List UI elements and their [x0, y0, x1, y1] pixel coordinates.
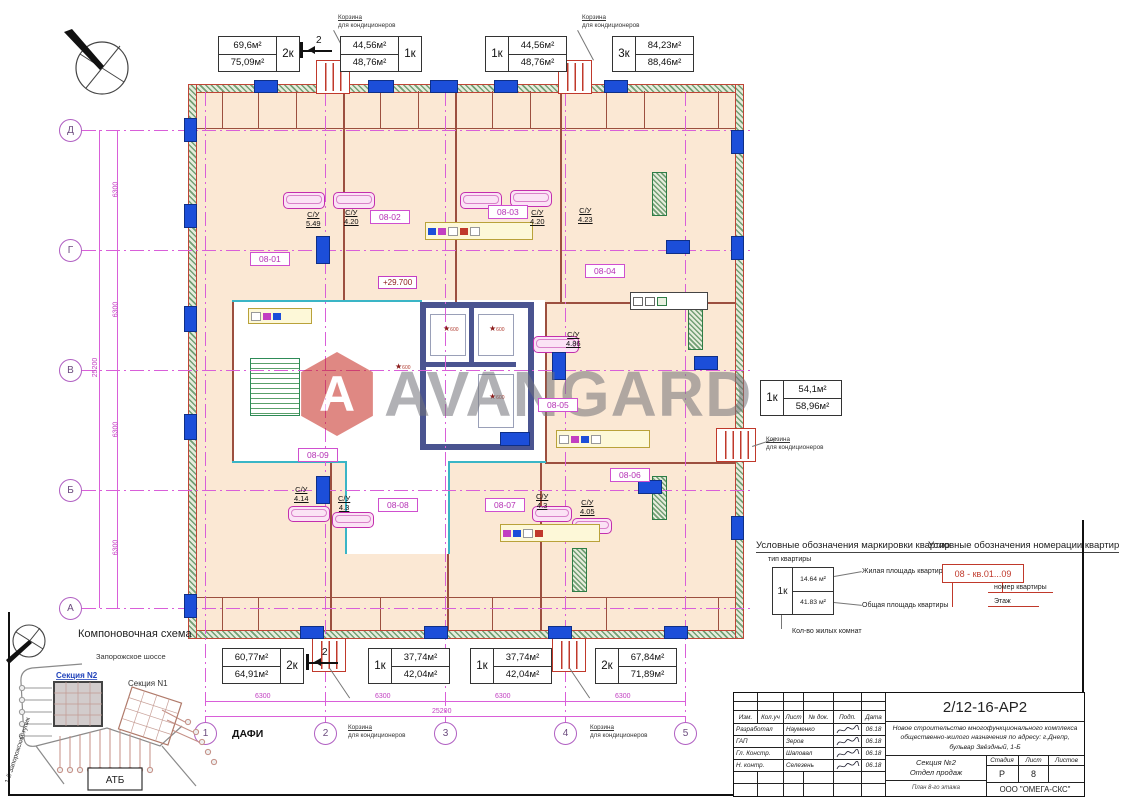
wall [492, 91, 493, 128]
wall [232, 300, 234, 462]
section-cell: Секция №2 Отдел продаж [886, 755, 987, 781]
total-area: 71,89м² [619, 667, 676, 684]
wall [606, 91, 607, 128]
signature-date: 06.18 [862, 736, 886, 748]
wc-label: С/У4.3 [338, 494, 350, 512]
living-area-label: Жилая площадь квартиры [862, 568, 948, 575]
dimension-value: 6300 [255, 693, 271, 700]
axis-label: 5 [683, 728, 689, 739]
drawing-sheet: ★600 ★600 ★600 ★600 [0, 0, 1131, 800]
elevation-mark: +29.700 [378, 276, 417, 289]
legend-line [952, 581, 953, 607]
signature [834, 724, 862, 736]
ac-basket-label-line2: для кондиционеров [338, 22, 395, 29]
ac-basket-label-line2: для кондиционеров [582, 22, 639, 29]
signature-role: Гл. Констр. [734, 748, 784, 760]
fire-hydrant-mark: ★600 [489, 324, 505, 333]
ac-basket-label: Корзинадля кондиционеров [766, 436, 823, 452]
living-area: 44,56м² [341, 37, 398, 55]
signature-squiggle [836, 749, 860, 759]
numbering-code-box: 08 - кв.01...09 [942, 564, 1024, 583]
axis-line-a [82, 608, 754, 609]
axis-label: 2 [323, 728, 329, 739]
type-label: тип квартиры [768, 556, 811, 563]
signature [834, 736, 862, 748]
bathtub [283, 192, 325, 209]
wall [195, 128, 735, 129]
wall [380, 91, 381, 128]
legend-sample-box: 1к 14.64 м² 41.83 м² [772, 567, 834, 615]
apartment-type: 1к [471, 649, 494, 683]
axis-bubble-col: 5 [674, 722, 697, 745]
axis-line-d [82, 130, 754, 131]
kitchen-counter [630, 292, 708, 310]
wall [644, 91, 645, 128]
axis-line-1 [205, 92, 206, 722]
apartment-type: 2к [280, 649, 303, 683]
site-atb-block: АТБ [88, 768, 142, 790]
dimension-total: 25200 [432, 708, 451, 715]
wall [718, 91, 719, 128]
rooms-count-label: Кол-во жилых комнат [792, 628, 862, 635]
dimension-value: 6300 [112, 302, 119, 318]
signature-squiggle [836, 737, 860, 747]
apartment-info-box: 1к 54,1м²58,96м² [760, 380, 842, 416]
apartment-info-box: 1к 37,74м²42,04м² [368, 648, 450, 684]
signature-date: 06.18 [862, 760, 886, 772]
site-scheme-title: Компоновочная схема [78, 628, 192, 640]
wall [222, 91, 223, 128]
axis-bubble-col: 4 [554, 722, 577, 745]
axis-bubble-col: 3 [434, 722, 457, 745]
wc-label: С/У4.23 [578, 206, 593, 224]
dimension-line [205, 701, 685, 702]
logo-letter: A [319, 365, 355, 423]
apartment-type: 1к [369, 649, 392, 683]
living-area: 60,77м² [223, 649, 280, 667]
corridor-wall [232, 300, 422, 302]
title-block: Изм. Кол.уч Лист № док. Подп. Дата Разра… [733, 692, 1085, 797]
signature-role: Н. контр. [734, 760, 784, 772]
apartment-info-box: 60,77м²64,91м² 2к [222, 648, 304, 684]
column [731, 130, 744, 154]
ac-basket-label: Корзинадля кондиционеров [590, 724, 647, 740]
signature-table: Изм. Кол.уч Лист № док. Подп. Дата Разра… [734, 693, 886, 796]
ac-basket-label-line2: для кондиционеров [590, 732, 647, 739]
wall [718, 597, 719, 630]
column [664, 626, 688, 639]
corridor-wall [448, 461, 546, 463]
section-line: Секция №2 [916, 758, 956, 768]
apartment-info-box: 3к 84,23м²88,46м² [612, 36, 694, 72]
axis-bubble-col: 2 [314, 722, 337, 745]
col-header: Кол.уч [758, 711, 784, 724]
signature-role: ГАП [734, 736, 784, 748]
total-area: 75,09м² [219, 55, 276, 72]
wall [380, 597, 381, 630]
bathtub [332, 512, 374, 528]
dimension-value: 6300 [112, 182, 119, 198]
wall [418, 91, 419, 128]
staircase [250, 358, 300, 416]
ac-basket-label-line2: для кондиционеров [766, 444, 823, 451]
wall [492, 597, 493, 630]
bathtub [288, 506, 330, 522]
document-number: 2/12-16-АР2 [886, 693, 1084, 722]
watermark: A AVANGARD [298, 352, 752, 436]
signature-name: Селезень [784, 760, 834, 772]
signature-date: 06.18 [862, 724, 886, 736]
kitchen-counter [248, 308, 312, 324]
axis-bubble-row: А [59, 597, 82, 620]
room-tag: 08-09 [298, 448, 338, 462]
living-area: 84,23м² [636, 37, 693, 55]
col-header: № док. [804, 711, 834, 724]
apartment-type: 3к [613, 37, 636, 71]
ac-basket-label: Корзинадля кондиционеров [582, 14, 639, 30]
living-area: 69,6м² [219, 37, 276, 55]
leader-line [781, 613, 782, 629]
sheets-header: Листов [1049, 755, 1084, 766]
dimension-line [205, 716, 685, 717]
column [494, 80, 518, 93]
column [316, 476, 330, 504]
wall-left [188, 84, 197, 639]
pilaster [572, 548, 587, 592]
column [254, 80, 278, 93]
leader-line [577, 30, 594, 60]
signature [834, 748, 862, 760]
wall [330, 462, 332, 630]
dafi-label: ДАФИ [232, 728, 263, 740]
column [666, 240, 690, 254]
axis-label: Д [67, 125, 74, 136]
wall [447, 554, 449, 630]
column [184, 414, 197, 440]
section-number: 2 [322, 647, 328, 658]
wall [296, 91, 297, 128]
plan-caption: План 8-го этажа [886, 780, 987, 796]
column [184, 204, 197, 228]
bathtub [333, 192, 375, 209]
axis-label: 4 [563, 728, 569, 739]
apartment-type: 1к [398, 37, 421, 71]
room-tag: 08-07 [485, 498, 525, 512]
wc-label: С/У4.05 [580, 498, 595, 516]
axis-line-g [82, 250, 754, 251]
wc-label: С/У4.86 [566, 330, 581, 348]
signature-date: 06.18 [862, 748, 886, 760]
axis-bubble-row: В [59, 359, 82, 382]
signature-role: Разработал [734, 724, 784, 736]
leader-line [329, 668, 350, 698]
axis-bubble-row: Б [59, 479, 82, 502]
total-area: 64,91м² [223, 667, 280, 684]
ac-basket-label: Корзинадля кондиционеров [348, 724, 405, 740]
column [368, 80, 394, 93]
living-area: 44,56м² [509, 37, 566, 55]
stage-value: Р [986, 766, 1019, 782]
wall [606, 597, 607, 630]
apartment-info-box: 69,6м²75,09м² 2к [218, 36, 300, 72]
axis-label: 3 [443, 728, 449, 739]
sheet-header: Лист [1019, 755, 1049, 766]
wc-label: С/У4.14 [294, 485, 309, 503]
column [548, 626, 572, 639]
signature-name: Шаповал [784, 748, 834, 760]
column [731, 516, 744, 540]
column [731, 236, 744, 260]
wall [195, 597, 735, 598]
column [316, 236, 330, 264]
sample-total: 41.83 м² [793, 592, 833, 615]
axis-label: В [67, 365, 74, 376]
living-area: 37,74м² [392, 649, 449, 667]
site-section2-block [54, 682, 102, 726]
company-name: ООО "ОМЕГА-СКС" [986, 782, 1084, 796]
apartment-info-box: 2к 67,84м²71,89м² [595, 648, 677, 684]
sample-type: 1к [773, 568, 793, 614]
ac-basket-label: Корзинадля кондиционеров [338, 14, 395, 30]
axis-bubble-row: Д [59, 119, 82, 142]
elevator-shaft [430, 314, 466, 356]
kitchen-counter [500, 524, 600, 542]
legend-title: Условные обозначения маркировки квартир [756, 540, 950, 553]
corridor-wall [448, 462, 450, 554]
dimension-total: 25200 [92, 358, 99, 377]
apartment-info-box: 1к 44,56м²48,76м² [485, 36, 567, 72]
ac-basket-label-line2: для кондиционеров [348, 732, 405, 739]
wall [455, 91, 457, 302]
section1-label: Секция N1 [128, 679, 168, 688]
project-line: общественно-жилого назначения по адресу:… [901, 733, 1070, 742]
wall [560, 91, 562, 302]
total-area: 48,76м² [509, 55, 566, 72]
pilaster [688, 306, 703, 350]
total-area: 42,04м² [494, 667, 551, 684]
stage-header: Стадия [986, 755, 1019, 766]
wc-label: С/У4.3 [536, 492, 548, 510]
dimension-line [117, 130, 118, 608]
wc-label: С/У4.20 [530, 208, 545, 226]
north-arrow-icon [58, 24, 138, 104]
wall [258, 597, 259, 630]
total-area-label: Общая площадь квартиры [862, 602, 948, 609]
column [430, 80, 458, 93]
site-section1-block [118, 687, 181, 745]
room-tag: 08-03 [488, 205, 528, 219]
apartment-info-box: 1к 37,74м²42,04м² [470, 648, 552, 684]
axis-bubble-row: Г [59, 239, 82, 262]
elevator-shaft [478, 314, 514, 356]
column [184, 594, 197, 618]
total-area: 42,04м² [392, 667, 449, 684]
watermark-text: AVANGARD [384, 357, 752, 431]
room-tag: 08-06 [610, 468, 650, 482]
wall [545, 462, 735, 464]
dimension-value: 6300 [495, 693, 511, 700]
column [300, 626, 324, 639]
dimension-value: 6300 [112, 540, 119, 556]
axis-label: Г [68, 245, 73, 256]
column [184, 306, 197, 332]
room-tag: 08-02 [370, 210, 410, 224]
sheets-value [1049, 766, 1084, 782]
pilaster [652, 172, 667, 216]
site-plan-graphic: АТБ Секция N2 Секция N1 [12, 660, 224, 792]
room-tag: 08-04 [585, 264, 625, 278]
project-line: Новое строительство многофункционального… [893, 724, 1078, 733]
apartment-type: 1к [761, 381, 784, 415]
wall [222, 597, 223, 630]
ac-basket [552, 638, 586, 672]
ac-basket [312, 638, 346, 672]
wall [540, 462, 542, 630]
signature-squiggle [836, 725, 860, 735]
col-header: Изм. [734, 711, 758, 724]
sheet-value: 8 [1019, 766, 1049, 782]
living-area: 37,74м² [494, 649, 551, 667]
floor-label: Этаж [988, 598, 1039, 607]
project-line: бульвар Звёздный, 1-Б [949, 743, 1020, 752]
room-tag: 08-05 [538, 398, 578, 412]
apartment-type: 2к [596, 649, 619, 683]
section-line: Отдел продаж [910, 768, 962, 778]
wc-label: С/У4.20 [344, 208, 359, 226]
signature-squiggle [836, 761, 860, 771]
section-number: 2 [316, 35, 322, 46]
project-description: Новое строительство многофункционального… [886, 721, 1084, 756]
signature-name: Зеров [784, 736, 834, 748]
axis-label: Б [67, 485, 74, 496]
dimension-value: 6300 [112, 422, 119, 438]
apartment-type: 2к [276, 37, 299, 71]
section2-label: Секция N2 [56, 671, 98, 680]
signature-name: Науменко [784, 724, 834, 736]
wall [258, 91, 259, 128]
col-header: Подп. [834, 711, 862, 724]
stage-sheet-table: Стадия Лист Листов Р 8 [986, 755, 1084, 783]
legend-title: Условные обозначения номерации квартир [928, 540, 1119, 553]
apartment-info-box: 44,56м²48,76м² 1к [340, 36, 422, 72]
kitchen-counter [425, 222, 533, 240]
wall [530, 91, 531, 128]
total-area: 48,76м² [341, 55, 398, 72]
dimension-value: 6300 [375, 693, 391, 700]
sheet-frame-left [8, 612, 10, 795]
column [184, 118, 197, 142]
column [638, 480, 662, 494]
wc-label: С/У5.49 [306, 210, 321, 228]
wall-bottom [188, 630, 744, 639]
axis-label: А [67, 603, 74, 614]
column [424, 626, 448, 639]
road-label-top: Запорожское шоссе [96, 652, 166, 661]
dimension-value: 6300 [615, 693, 631, 700]
atb-label: АТБ [106, 775, 125, 786]
room-tag: 08-08 [378, 498, 418, 512]
fire-hydrant-mark: ★600 [443, 324, 459, 333]
signature [834, 760, 862, 772]
apartment-type: 1к [486, 37, 509, 71]
col-header: Лист [784, 711, 804, 724]
avangard-logo-icon: A [298, 352, 376, 436]
col-header: Дата [862, 711, 886, 724]
living-area: 54,1м² [784, 381, 841, 399]
total-area: 58,96м² [784, 399, 841, 416]
column [604, 80, 628, 93]
living-area: 67,84м² [619, 649, 676, 667]
room-tag: 08-01 [250, 252, 290, 266]
sample-living: 14.64 м² [793, 568, 833, 592]
apartment-number-label: номер квартиры [988, 584, 1053, 593]
leader-line [569, 668, 590, 698]
total-area: 88,46м² [636, 55, 693, 72]
